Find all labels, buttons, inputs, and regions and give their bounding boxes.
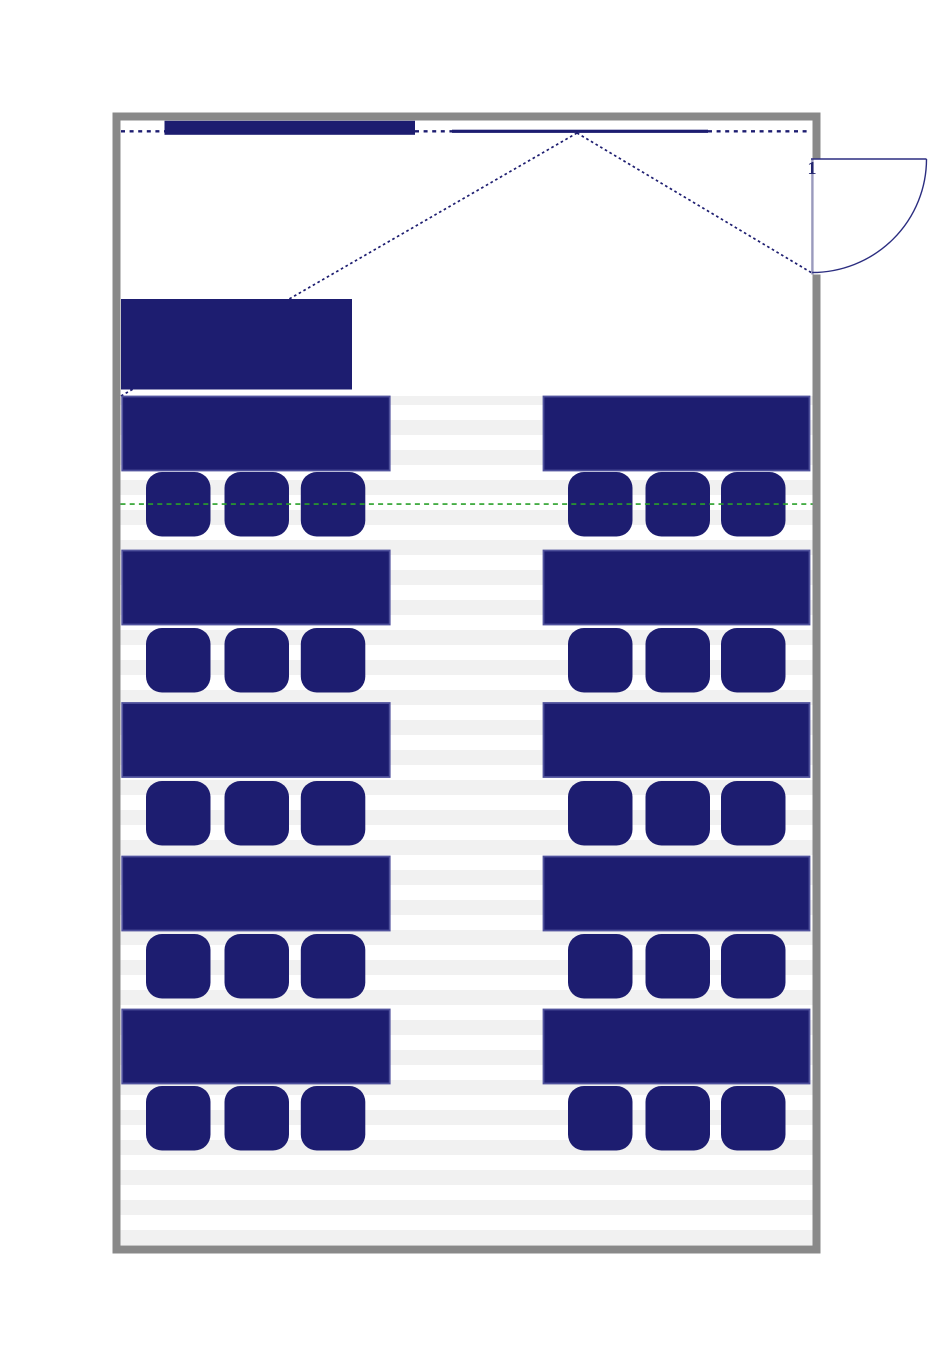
svg-text:1: 1 (808, 158, 817, 178)
